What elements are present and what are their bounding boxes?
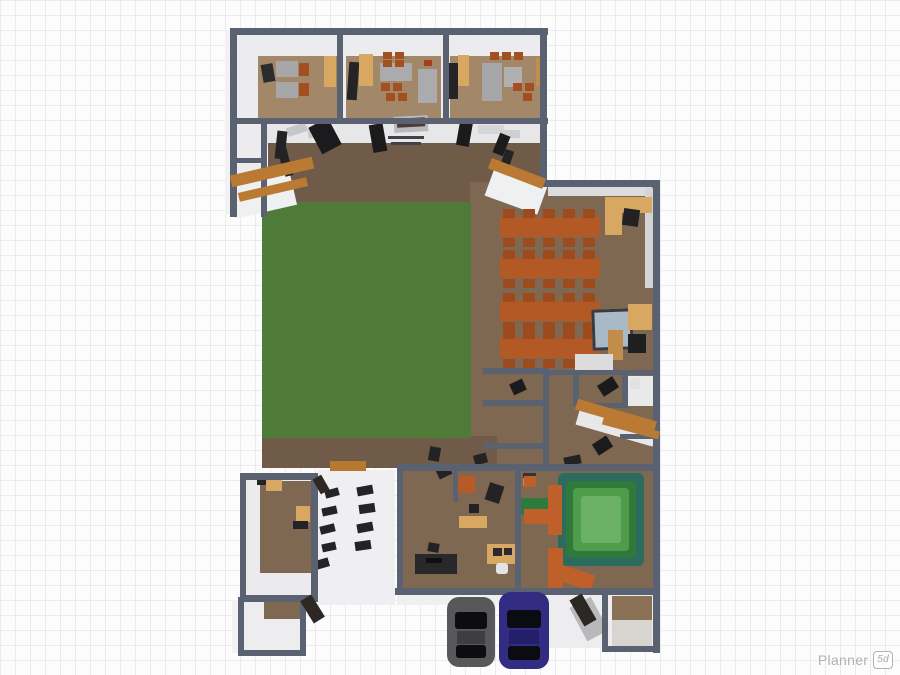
car-blue-roof (509, 630, 539, 644)
dining-chair (563, 330, 575, 339)
dining-chair (503, 293, 515, 302)
chair (383, 52, 392, 59)
cabinet (458, 55, 469, 86)
dining-chair (523, 330, 535, 339)
wall (653, 180, 660, 653)
wall (311, 473, 318, 602)
dining-chair (543, 279, 555, 288)
office-chair (293, 521, 308, 529)
chair (395, 60, 404, 67)
chair (523, 93, 532, 101)
wall (543, 368, 549, 471)
coat-rack (448, 63, 458, 99)
watermark-logo: 5d (873, 651, 893, 669)
wall (540, 28, 547, 187)
wall (240, 473, 318, 480)
dining-chair (523, 293, 535, 302)
chair (383, 60, 392, 67)
desk (628, 304, 652, 330)
small-item (424, 60, 432, 66)
wall (453, 470, 458, 502)
floor-plan-canvas: Planner 5d (0, 0, 900, 675)
desk (459, 516, 487, 528)
chair (525, 83, 534, 91)
car-gray-roof (457, 631, 485, 644)
dining-chair (503, 279, 515, 288)
corner-desk (605, 213, 622, 235)
wall (483, 443, 549, 449)
desk-item (493, 548, 502, 556)
chair (502, 52, 511, 60)
dining-chair (543, 359, 555, 368)
dining-table (500, 301, 600, 321)
dining-chair (563, 238, 575, 247)
wall (337, 28, 343, 124)
computer-desk (415, 554, 457, 574)
shelf (482, 63, 502, 101)
dining-chair (563, 359, 575, 368)
slide-section (524, 509, 562, 524)
cabinet (324, 56, 336, 87)
desk (296, 506, 310, 522)
ballpit-center (581, 496, 621, 543)
dining-chair (563, 279, 575, 288)
wall (443, 28, 449, 124)
dining-chair (583, 250, 595, 259)
dining-chair (523, 238, 535, 247)
dining-chair (503, 250, 515, 259)
dining-chair (543, 250, 555, 259)
bench (330, 461, 366, 471)
dining-chair (523, 250, 535, 259)
wall (230, 28, 237, 217)
watermark-text: Planner (818, 652, 868, 668)
chair (398, 93, 407, 101)
wall (240, 473, 246, 602)
dining-chair (563, 250, 575, 259)
car-blue-windshield (507, 610, 541, 628)
wall (238, 650, 306, 656)
chair (381, 83, 390, 91)
wall (515, 464, 521, 595)
car-gray-rear-window (456, 645, 486, 658)
car-gray-windshield (455, 612, 487, 629)
dining-table (500, 258, 600, 278)
bench (388, 136, 424, 139)
chair (514, 52, 523, 60)
slide-section (524, 476, 536, 487)
wall (541, 180, 660, 187)
chair (513, 83, 522, 91)
chair (299, 83, 309, 96)
office-chair (469, 504, 479, 513)
chair (490, 52, 499, 60)
bottomright-subroom-wood (612, 596, 652, 620)
dining-chair (503, 238, 515, 247)
bottomright-subroom-light (612, 620, 652, 646)
dining-chair (563, 209, 575, 218)
slide-section (548, 548, 563, 588)
desk (276, 61, 298, 77)
subroom-left-wood (264, 600, 301, 619)
office-chair (628, 334, 646, 353)
dining-chair (523, 209, 535, 218)
wall (397, 464, 660, 471)
dining-table (500, 217, 600, 237)
wall (483, 368, 545, 374)
monitor (426, 558, 442, 563)
watermark: Planner 5d (818, 651, 893, 669)
dining-chair (503, 209, 515, 218)
chair (299, 63, 309, 76)
dining-chair (543, 209, 555, 218)
cabinet (266, 479, 282, 491)
lawn (262, 202, 471, 438)
wall (238, 597, 244, 655)
dining-chair (563, 293, 575, 302)
car-blue-rear-window (508, 646, 540, 660)
office-chair (622, 208, 640, 227)
wall (549, 370, 660, 375)
dining-chair (583, 279, 595, 288)
chair (393, 83, 402, 91)
dining-chair (583, 209, 595, 218)
bench (391, 142, 421, 145)
dining-chair (503, 359, 515, 368)
office-chair (427, 542, 439, 553)
chair (386, 93, 395, 101)
meeting-table (418, 69, 437, 103)
dining-chair (503, 330, 515, 339)
wall (483, 400, 549, 406)
chair (395, 52, 404, 59)
cafeteria-top-wall-face (548, 187, 652, 196)
wall-box (630, 378, 640, 389)
wall (397, 464, 403, 595)
dining-chair (523, 359, 535, 368)
wall (230, 28, 548, 35)
armchair (458, 476, 475, 493)
dining-chair (543, 330, 555, 339)
dining-chair (583, 293, 595, 302)
wall (622, 370, 628, 406)
desk (276, 82, 298, 98)
dining-chair (543, 238, 555, 247)
wall (230, 118, 548, 124)
dining-chair (583, 238, 595, 247)
cabinet (359, 54, 373, 86)
wall (602, 646, 660, 652)
sink (496, 563, 508, 574)
desk-item (504, 548, 512, 555)
dining-chair (523, 279, 535, 288)
dining-chair (543, 293, 555, 302)
